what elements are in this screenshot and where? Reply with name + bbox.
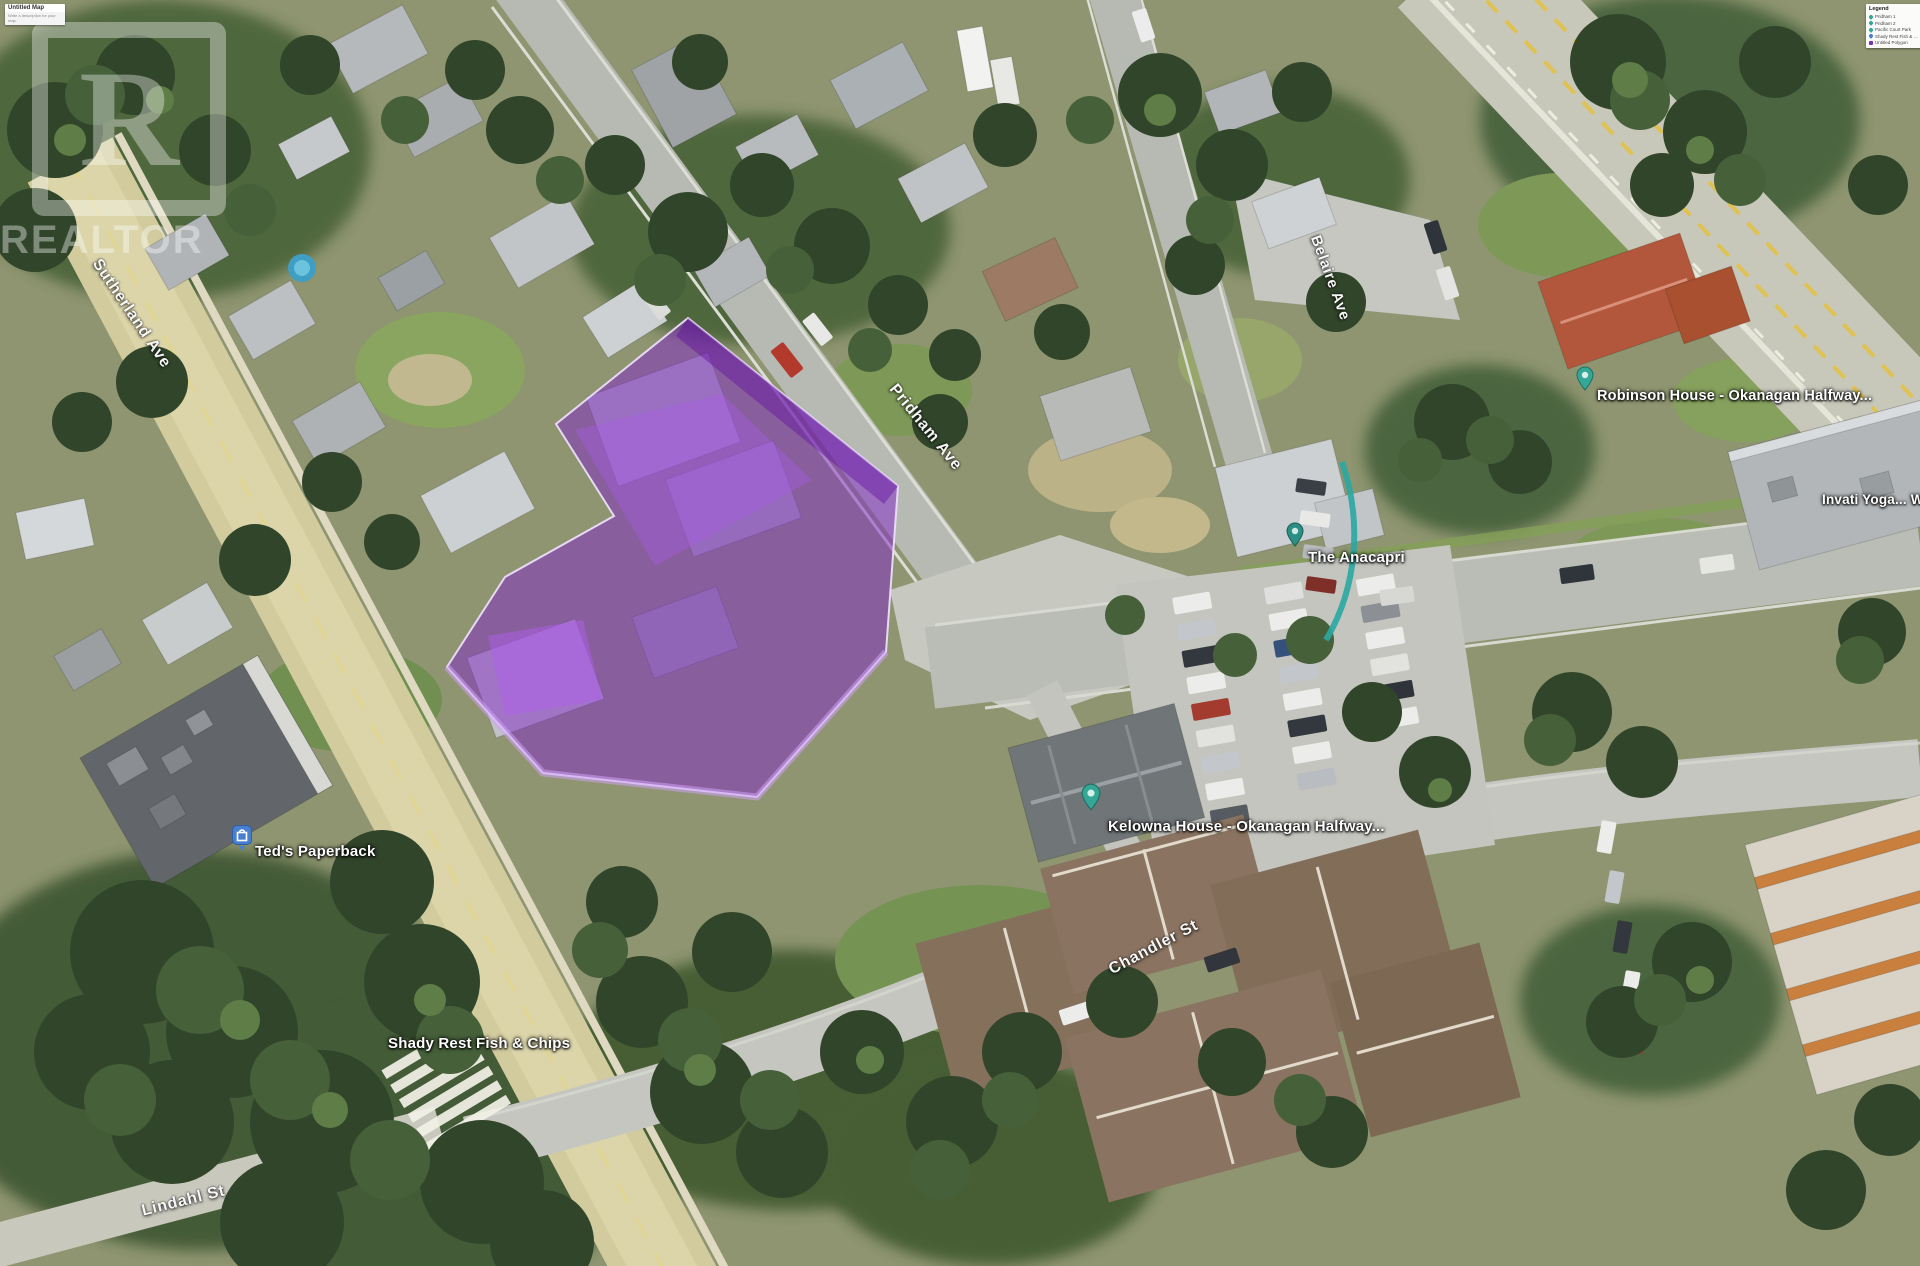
satellite-map-art bbox=[0, 0, 1920, 1266]
legend-item-pridham-2[interactable]: Pridham 2 bbox=[1869, 21, 1920, 26]
legend-item-pacific-court-park[interactable]: Pacific Court Park bbox=[1869, 27, 1920, 32]
teal-pin-icon bbox=[1868, 14, 1874, 20]
poi-label-robinson[interactable]: Robinson House - Okanagan Halfway... bbox=[1597, 388, 1872, 404]
teds-paperback-icon[interactable] bbox=[231, 824, 253, 857]
legend-panel: Legend Pridham 1 Pridham 2 Pacific Court… bbox=[1866, 4, 1920, 48]
kelowna-house-pin[interactable] bbox=[1081, 783, 1101, 816]
poi-label-invati[interactable]: Invati Yoga... W bbox=[1822, 492, 1920, 507]
poi-label-kelowna-house[interactable]: Kelowna House - Okanagan Halfway... bbox=[1108, 818, 1385, 835]
blue-pin-icon bbox=[1868, 33, 1874, 39]
legend-title: Legend bbox=[1869, 6, 1920, 12]
map-subtitle: Write a description for your map. bbox=[5, 12, 65, 25]
map-title: Untitled Map bbox=[5, 4, 65, 12]
my-maps-satellite-view[interactable]: Sutherland Ave Pridham Ave Belaire Ave C… bbox=[0, 0, 1920, 1266]
anacapri-pin[interactable] bbox=[1286, 522, 1304, 552]
legend-item-shady-rest[interactable]: Shady Rest Fish & Chips bbox=[1869, 34, 1920, 39]
poi-label-shady-rest[interactable]: Shady Rest Fish & Chips bbox=[388, 1035, 570, 1052]
legend-item-untitled-polygon[interactable]: Untitled Polygon bbox=[1869, 40, 1920, 45]
teal-pin-icon bbox=[1868, 27, 1874, 33]
map-title-card[interactable]: Untitled Map Write a description for you… bbox=[5, 4, 65, 25]
teal-pin-icon bbox=[1868, 20, 1874, 26]
poi-label-teds[interactable]: Ted's Paperback bbox=[255, 843, 376, 860]
legend-item-pridham-1[interactable]: Pridham 1 bbox=[1869, 14, 1920, 19]
robinson-house-pin[interactable] bbox=[1576, 366, 1594, 396]
poi-label-anacapri[interactable]: The Anacapri bbox=[1308, 549, 1405, 566]
purple-polygon-icon bbox=[1869, 41, 1873, 45]
